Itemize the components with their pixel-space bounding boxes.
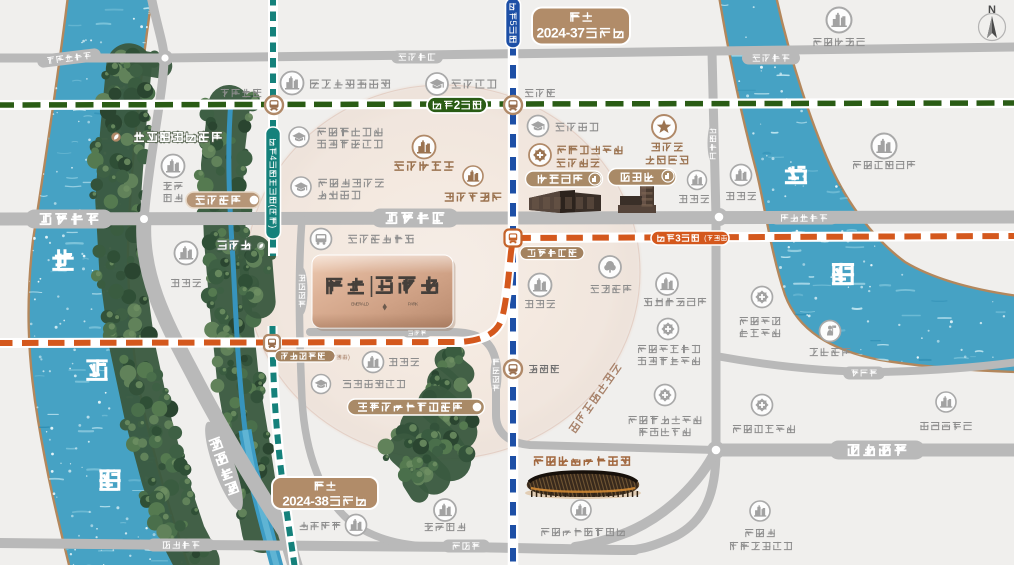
svg-text:(: ( <box>328 354 330 361</box>
svg-text:): ) <box>268 225 278 228</box>
svg-text:7: 7 <box>577 26 585 41</box>
svg-text:2: 2 <box>454 99 460 112</box>
svg-text:(: ( <box>268 205 278 208</box>
svg-text:8: 8 <box>321 493 328 508</box>
svg-text:): ) <box>348 354 350 361</box>
svg-text:4: 4 <box>268 155 278 160</box>
svg-text:): ) <box>727 233 729 242</box>
svg-text:3: 3 <box>675 233 681 244</box>
svg-text:N: N <box>988 4 996 16</box>
svg-text:5: 5 <box>508 20 519 25</box>
